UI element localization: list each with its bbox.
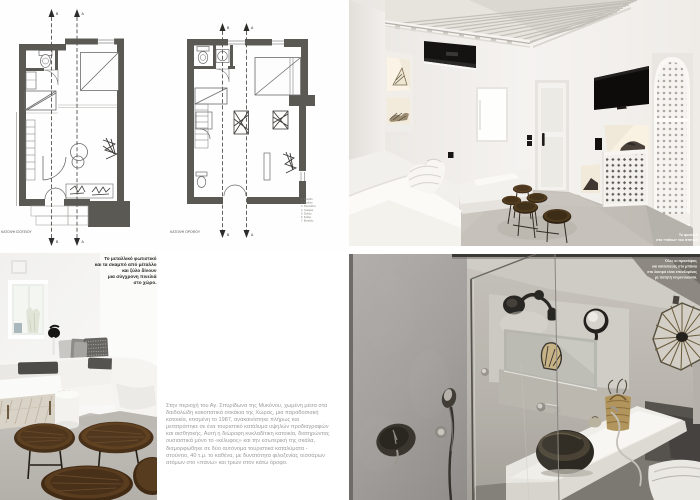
svg-text:7. Είσοδος: 7. Είσοδος	[301, 219, 314, 223]
svg-text:Το μεταλλικό φωτιστικό: Το μεταλλικό φωτιστικό	[104, 256, 156, 261]
svg-text:μια σύγχρονη πινελιά: μια σύγχρονη πινελιά	[108, 274, 157, 279]
svg-text:στο «πάνω» του σπιτιού: στο «πάνω» του σπιτιού	[656, 238, 698, 242]
svg-text:Το φωτεινό: Το φωτεινό	[679, 233, 699, 237]
svg-text:4. Γραφείο: 4. Γραφείο	[301, 208, 314, 212]
svg-text:ΚΑΤΟΨΗ ΟΡΟΦΟΥ: ΚΑΤΟΨΗ ΟΡΟΦΟΥ	[170, 230, 201, 234]
svg-text:2. Μπάνιο: 2. Μπάνιο	[301, 201, 313, 205]
svg-text:5. Σαλόνι: 5. Σαλόνι	[301, 211, 312, 215]
svg-text:και κατασκευές στο μπάνιο: και κατασκευές στο μπάνιο	[652, 265, 697, 269]
svg-text:1. Κρεβάτι: 1. Κρεβάτι	[301, 197, 313, 201]
svg-text:με πατητή τσιμεντοκονία.: με πατητή τσιμεντοκονία.	[655, 276, 697, 280]
svg-text:6. Σκάλα: 6. Σκάλα	[301, 215, 312, 219]
svg-text:ΚΑΤΟΨΗ ΙΣΟΓΕΙΟΥ: ΚΑΤΟΨΗ ΙΣΟΓΕΙΟΥ	[1, 230, 32, 234]
svg-text:στο λουτρό είναι επενδυμένες: στο λουτρό είναι επενδυμένες	[647, 270, 697, 274]
svg-text:στο χώρο.: στο χώρο.	[134, 280, 157, 285]
svg-text:3. Ντουλάπα: 3. Ντουλάπα	[301, 204, 316, 208]
svg-text:και τα σκαμπό από μέταλλο: και τα σκαμπό από μέταλλο	[95, 262, 157, 267]
svg-text:Όλες οι προσόψεις: Όλες οι προσόψεις	[664, 259, 697, 263]
